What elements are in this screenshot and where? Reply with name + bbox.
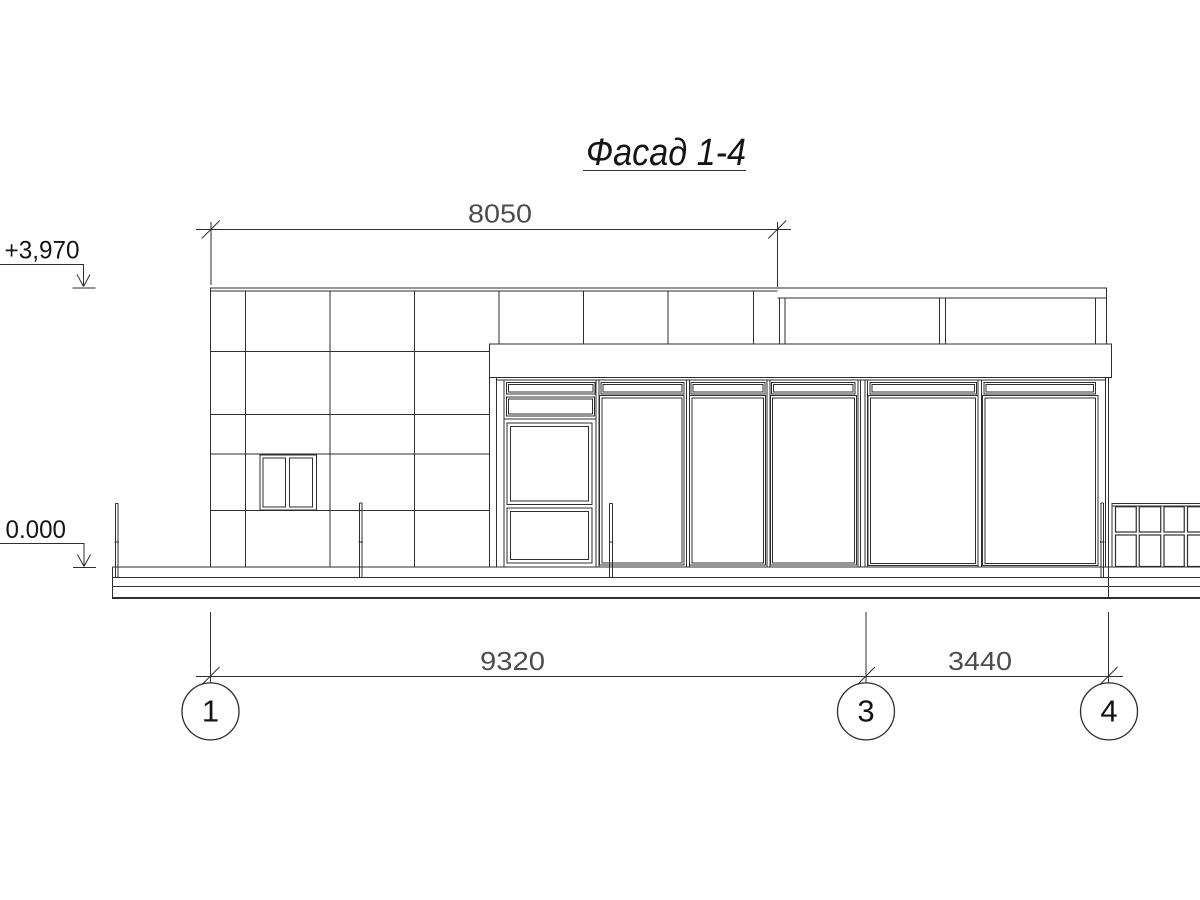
svg-text:Фасад 1-4: Фасад 1-4 bbox=[586, 132, 746, 174]
svg-text:0.000: 0.000 bbox=[6, 516, 67, 544]
svg-text:3440: 3440 bbox=[948, 646, 1012, 676]
svg-text:1: 1 bbox=[202, 694, 219, 729]
svg-text:3: 3 bbox=[857, 694, 874, 729]
svg-text:4: 4 bbox=[1100, 694, 1117, 729]
svg-text:+3,970: +3,970 bbox=[5, 237, 80, 265]
svg-text:8050: 8050 bbox=[468, 199, 532, 229]
svg-text:9320: 9320 bbox=[480, 646, 545, 676]
